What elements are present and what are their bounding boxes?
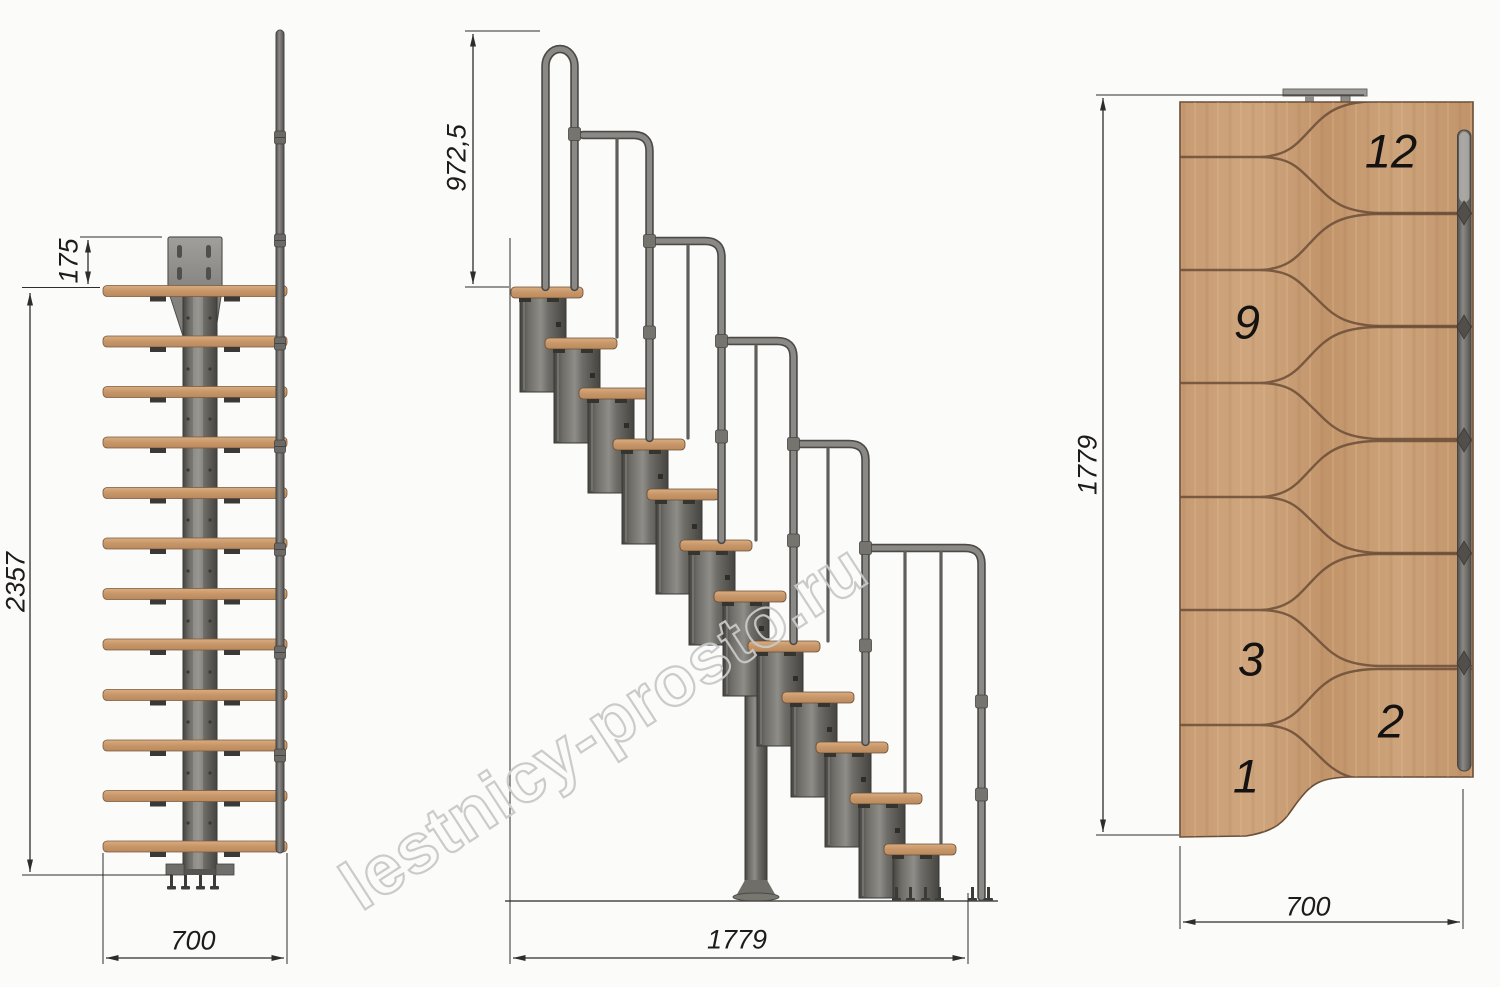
step-number-1: 1 [1233, 749, 1259, 804]
drawing-canvas: 175 2357 700 972,5 1779 1779 700 12 9 3 … [0, 0, 1500, 987]
panel-texture [1180, 101, 1473, 837]
base-foot [216, 864, 234, 875]
plan-view [1180, 89, 1473, 837]
step-number-12: 12 [1365, 124, 1417, 179]
front-view [103, 30, 287, 890]
dim-700-front-label: 700 [170, 926, 215, 957]
dim-1779-plan-label: 1779 [1073, 435, 1104, 495]
dim-175-label: 175 [54, 238, 85, 283]
dim-1779-side-label: 1779 [707, 925, 767, 956]
step-number-3: 3 [1238, 632, 1264, 687]
dim-2357-label: 2357 [1, 552, 32, 612]
base-foot [166, 864, 184, 875]
staircase-drawing [0, 0, 1500, 987]
wall-mount-plate [168, 237, 222, 290]
plate-slot [206, 267, 211, 280]
plate-slot [177, 267, 182, 280]
support-post-foot [733, 893, 779, 901]
column-base [180, 869, 220, 875]
dim-700-plan-label: 700 [1285, 892, 1330, 923]
column-highlight [193, 291, 203, 872]
step-number-9: 9 [1234, 295, 1260, 350]
handrail-hoop [546, 49, 575, 287]
dim-972-label: 972,5 [442, 124, 473, 192]
side-view [505, 49, 998, 902]
plate-slot [177, 245, 182, 258]
anchor-bolts [167, 875, 219, 890]
plate-slot [206, 245, 211, 258]
hoop-plan [1459, 132, 1470, 202]
step-number-2: 2 [1378, 694, 1404, 749]
